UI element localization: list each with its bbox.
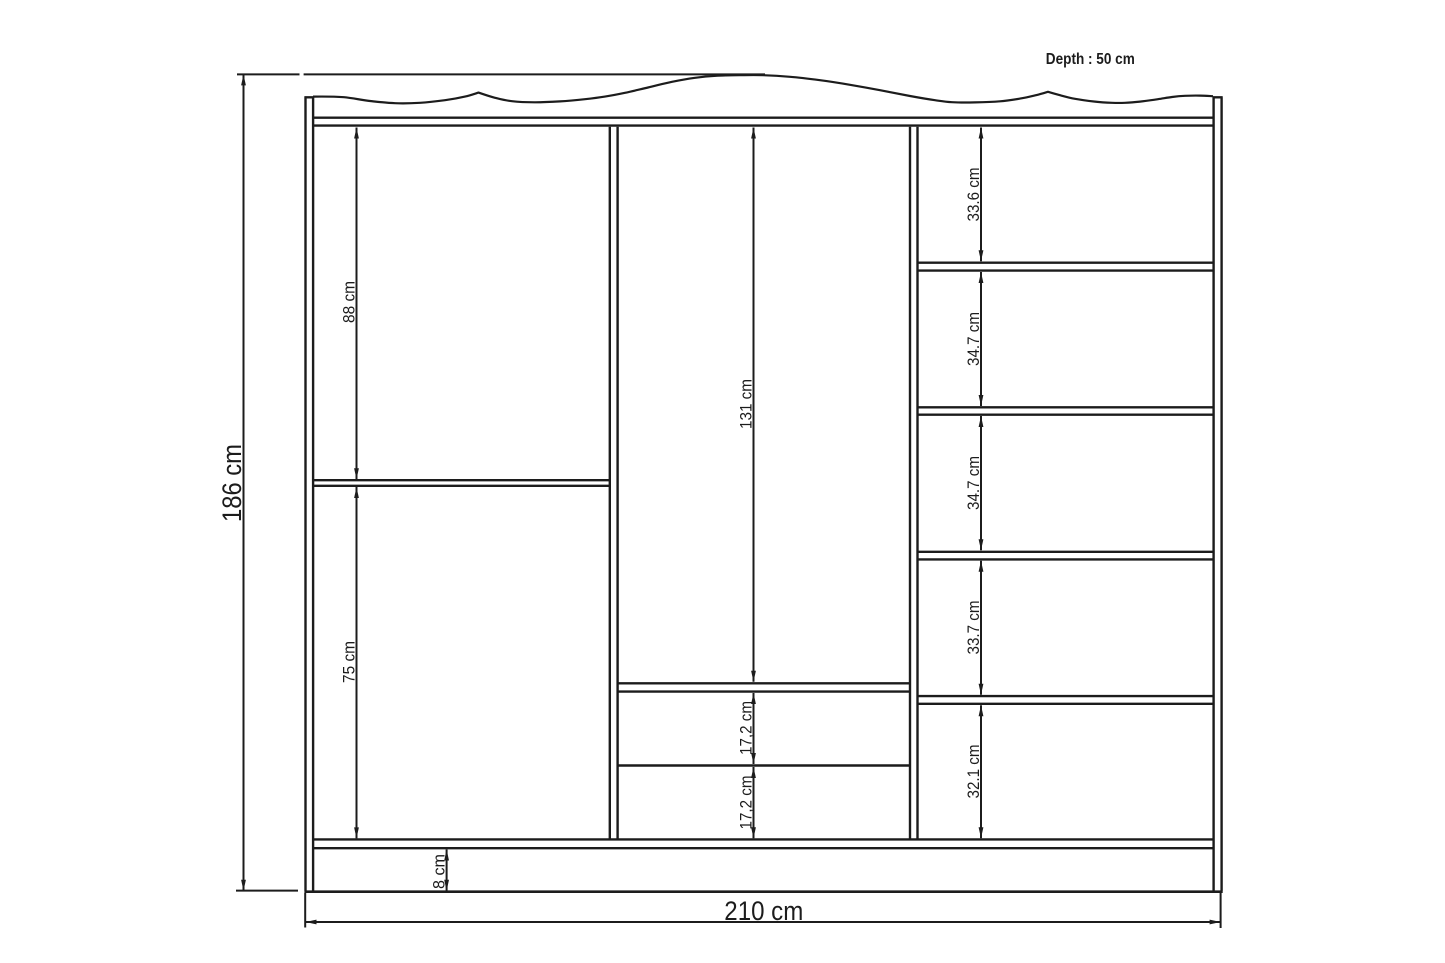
svg-text:210 cm: 210 cm (724, 896, 803, 926)
svg-text:88 cm: 88 cm (340, 281, 359, 323)
svg-text:34.7 cm: 34.7 cm (964, 456, 983, 510)
svg-text:186 cm: 186 cm (217, 444, 247, 522)
svg-text:33.7 cm: 33.7 cm (964, 601, 983, 655)
svg-text:8 cm: 8 cm (430, 854, 449, 889)
svg-text:17,2 cm: 17,2 cm (737, 776, 756, 830)
svg-text:131 cm: 131 cm (737, 379, 756, 429)
svg-text:33.6 cm: 33.6 cm (964, 168, 983, 222)
svg-text:32.1 cm: 32.1 cm (964, 745, 983, 799)
svg-text:17,2 cm: 17,2 cm (737, 701, 756, 755)
svg-text:Depth : 50 cm: Depth : 50 cm (1046, 51, 1135, 68)
svg-text:75 cm: 75 cm (340, 641, 359, 683)
svg-text:34.7 cm: 34.7 cm (964, 312, 983, 366)
